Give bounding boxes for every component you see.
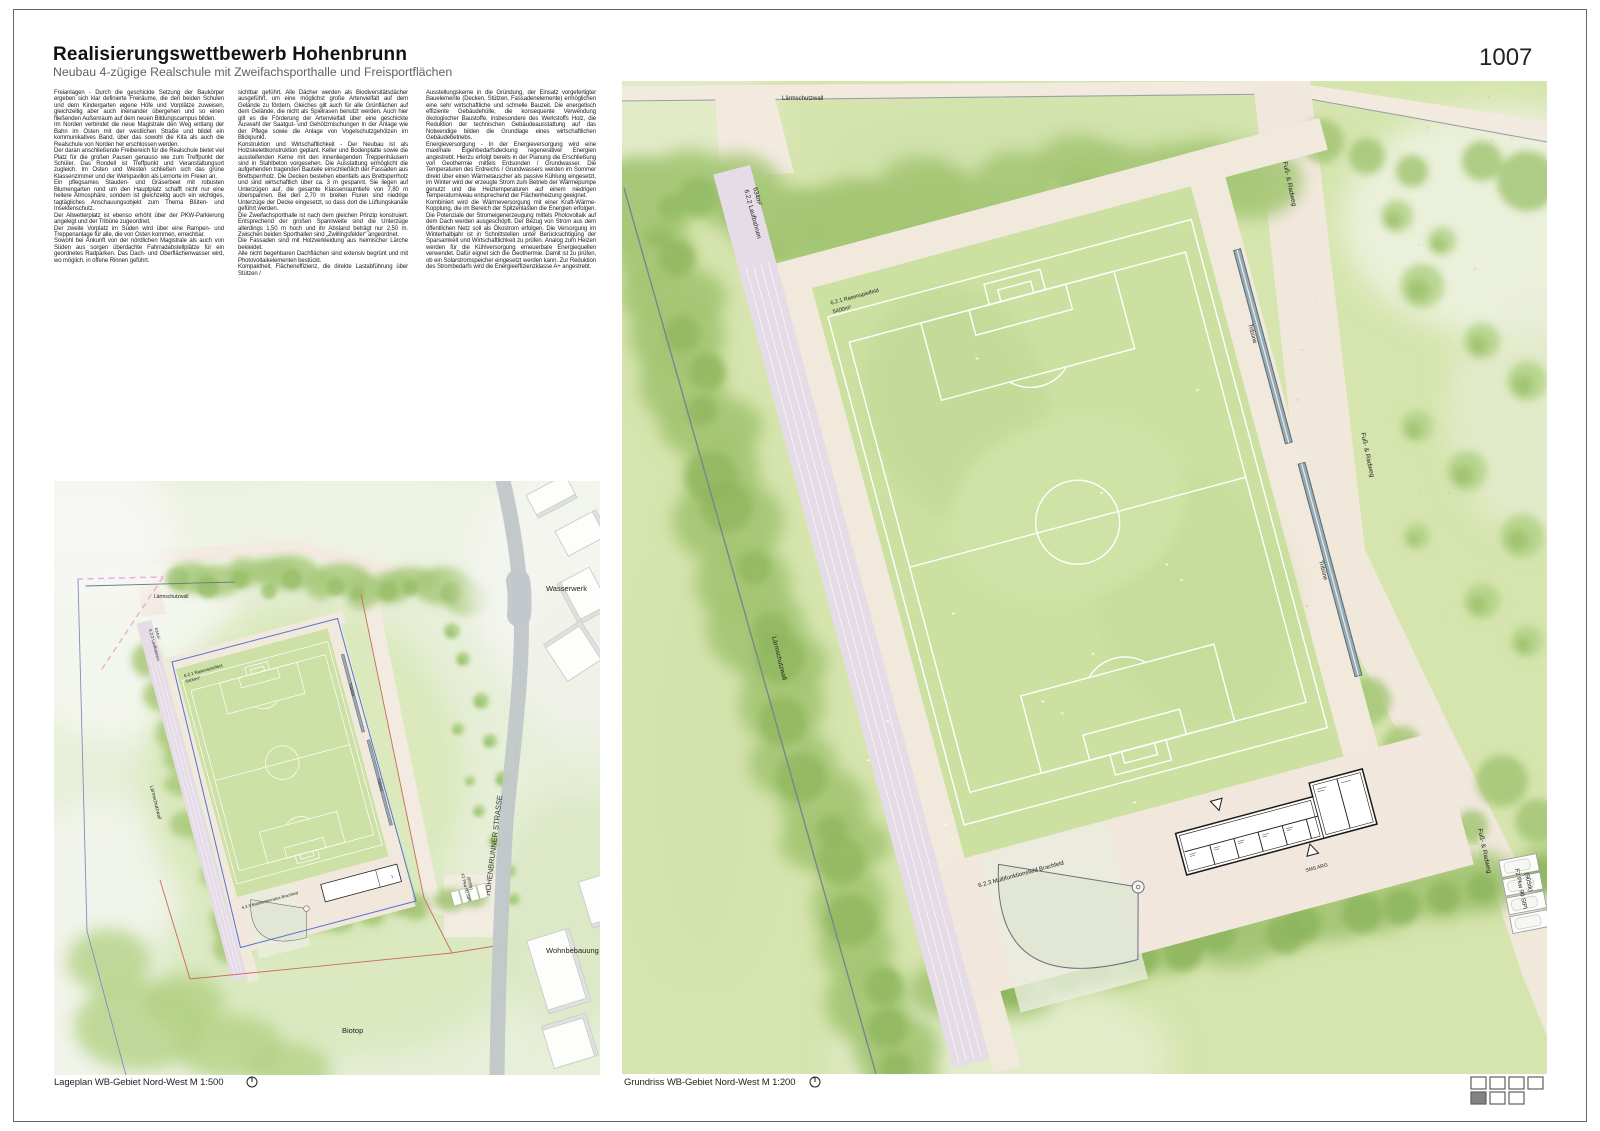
svg-text:Lärmschutzwall: Lärmschutzwall bbox=[154, 594, 188, 600]
svg-text:Wasserwerk: Wasserwerk bbox=[546, 584, 587, 593]
svg-text:Wohnbebauung: Wohnbebauung bbox=[546, 946, 599, 955]
svg-text:Biotop: Biotop bbox=[342, 1026, 363, 1035]
svg-text:Lärmschutzwall: Lärmschutzwall bbox=[782, 96, 823, 102]
